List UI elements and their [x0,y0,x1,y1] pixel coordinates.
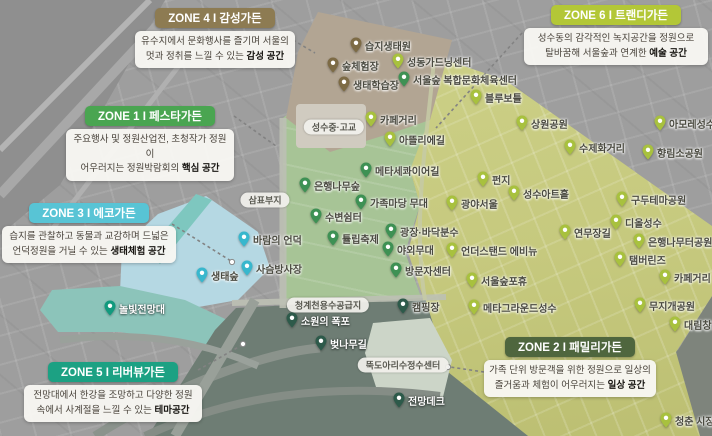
location-pin-icon [390,262,402,278]
zone-3-line2: 언덕정원을 거닐 수 있는 [12,246,110,257]
zone-card-5: ZONE 5 I 리버뷰가든 전망대에서 한강을 조망하고 다양한 정원 속에서… [24,362,202,422]
map-pin: 성동가드닝센터 [392,53,471,69]
location-pin-icon [315,335,327,351]
place-label-chip: 뚝도아리수정수센터 [358,358,449,373]
location-pin-icon [610,214,622,230]
zone-2-title: ZONE 2 I 패밀리가든 [518,342,622,354]
location-pin-icon [633,233,645,249]
zone-3-keyword: 생태체험 공간 [110,246,165,257]
location-pin-icon [238,231,250,247]
zone-2-keyword: 일상 공간 [608,380,646,391]
pin-label: 구두테마공원 [631,192,686,207]
pin-label: 디올성수 [625,215,662,230]
location-pin-icon [508,185,520,201]
location-pin-icon [669,316,681,332]
map-pin: 캠핑장 [397,298,440,314]
map-pin: 향림소공원 [642,144,703,160]
location-pin-icon [564,139,576,155]
pin-label: 무지개공원 [649,298,695,313]
location-pin-icon [470,89,482,105]
location-pin-icon [654,115,666,131]
pin-label: 생태숲 [211,268,239,283]
zone-card-3: ZONE 3 I 에코가든 습지를 관찰하고 동물과 교감하며 드넓은 언덕정원… [2,203,176,263]
map-pin: 대림창고 [669,316,712,332]
location-pin-icon [634,297,646,313]
zone-4-line1: 유수지에서 문화행사를 즐기며 서울의 [141,36,289,47]
zone-4-keyword: 감성 공간 [247,51,285,62]
location-pin-icon [397,298,409,314]
zone-6-header: ZONE 6 I 트랜디가든 [551,5,681,25]
location-pin-icon [559,224,571,240]
map-pin: 방문자센터 [390,262,451,278]
map-pin: 전망데크 [393,392,445,408]
pin-label: 벚나무길 [330,336,367,351]
zone-5-header: ZONE 5 I 리버뷰가든 [48,362,178,382]
map-pin: 사슴방사장 [241,260,302,276]
map-pin: 구두테마공원 [616,191,686,207]
zone-1-keyword: 핵심 공간 [182,163,220,174]
pin-label: 성동가드닝센터 [407,54,471,69]
map-pin: 무지개공원 [634,297,695,313]
pin-label: 성수아트홀 [523,186,569,201]
location-pin-icon [616,191,628,207]
map-pin: 성수아트홀 [508,185,569,201]
location-pin-icon [384,131,396,147]
map-pin: 은행나무터공원 [633,233,712,249]
pin-label: 카페거리 [380,112,417,127]
location-pin-icon [516,115,528,131]
zone-1-description: 주요행사 및 정원산업전, 초청작가 정원이 어우러지는 정원박람회의 핵심 공… [66,129,234,181]
pin-label: 수변쉼터 [325,209,362,224]
location-pin-icon [365,111,377,127]
zone-3-title: ZONE 3 I 에코가든 [42,208,135,220]
location-pin-icon [446,195,458,211]
map-pin: 수변쉼터 [310,208,362,224]
map-pin: 가족마당 무대 [355,194,428,210]
location-pin-icon [392,53,404,69]
location-pin-icon [446,242,458,258]
zone-6-title: ZONE 6 I 트랜디가든 [564,10,668,22]
zone-card-1: ZONE 1 I 페스타가든 주요행사 및 정원산업전, 초청작가 정원이 어우… [66,106,234,181]
map-pin: 탬버린즈 [614,251,666,267]
map-pin: 블루보틀 [470,89,522,105]
location-pin-icon [338,76,350,92]
map-pin: 청춘 시장 [660,412,712,428]
zone-3-line1: 습지를 관찰하고 동물과 교감하며 드넓은 [9,231,168,242]
pin-label: 아뜰리에길 [399,132,445,147]
zone-2-description: 가족 단위 방문객을 위한 정원으로 일상의 즐거움과 체험이 어우러지는 일상… [484,360,656,397]
pin-label: 메타그라운드성수 [483,300,557,315]
pin-label: 청춘 시장 [675,413,712,428]
map-pin: 메타그라운드성수 [468,299,557,315]
map-pin: 광야서울 [446,195,498,211]
map-pin: 야외무대 [382,241,434,257]
map-pin: 은행나무숲 [299,177,360,193]
map-pin: 아뜰리에길 [384,131,445,147]
zone-1-title: ZONE 1 I 페스타가든 [98,111,202,123]
zone-5-line2: 속에서 사계절을 느낄 수 있는 [36,405,154,416]
place-label-chip: 삼표부지 [240,193,289,208]
location-pin-icon [385,223,397,239]
zone-4-title: ZONE 4 I 감성가든 [168,13,261,25]
map-pin: 디올성수 [610,214,662,230]
location-pin-icon [466,272,478,288]
location-pin-icon [104,300,116,316]
map-pin: 언더스탠드 에비뉴 [446,242,537,258]
location-pin-icon [241,260,253,276]
pin-label: 소원의 폭포 [301,313,350,328]
garden-zone-map: 삼표부지성수중·고교청계천용수공급지뚝도아리수정수센터 습지생태원숲체험장생태학… [0,0,712,436]
map-pin: 서울숲포휴 [466,272,527,288]
pin-label: 야외무대 [397,242,434,257]
zone-6-keyword: 예술 공간 [649,48,687,59]
location-pin-icon [196,267,208,283]
pin-label: 광야서울 [461,196,498,211]
pin-label: 아모레성수 [669,116,712,131]
zone-1-line2: 어우러지는 정원박람회의 [80,163,181,174]
pin-label: 놀빛전망대 [119,301,165,316]
map-pin: 숲체험장 [327,57,379,73]
pin-label: 생태학습장 [353,77,399,92]
location-pin-icon [642,144,654,160]
map-pin: 카페거리 [659,269,711,285]
location-pin-icon [660,412,672,428]
pin-label: 은행나무숲 [314,178,360,193]
map-pin: 펀지 [477,171,510,187]
location-pin-icon [310,208,322,224]
map-pin: 생태학습장 [338,76,399,92]
map-pin: 튤립축제 [327,230,379,246]
location-pin-icon [382,241,394,257]
pin-label: 대림창고 [684,317,712,332]
location-pin-icon [659,269,671,285]
place-label-chip: 성수중·고교 [304,120,364,135]
zone-3-header: ZONE 3 I 에코가든 [29,203,148,223]
zone-1-line1: 주요행사 및 정원산업전, 초청작가 정원이 [73,134,226,160]
pin-label: 서울숲포휴 [481,273,527,288]
zone-4-description: 유수지에서 문화행사를 즐기며 서울의 멋과 정취를 느낄 수 있는 감성 공간 [135,31,295,68]
map-pin: 바람의 언덕 [238,231,302,247]
pin-label: 수제화거리 [579,140,625,155]
map-pin: 광장·바닥분수 [385,223,459,239]
pin-label: 캠핑장 [412,299,440,314]
zone-6-description: 성수동의 감각적인 녹지공간을 정원으로 탈바꿈해 서울숲과 연계한 예술 공간 [524,28,708,65]
map-pin: 연무장길 [559,224,611,240]
location-pin-icon [468,299,480,315]
location-pin-icon [350,37,362,53]
pin-label: 바람의 언덕 [253,232,302,247]
pin-label: 탬버린즈 [629,252,666,267]
zone-4-header: ZONE 4 I 감성가든 [155,8,274,28]
location-pin-icon [299,177,311,193]
location-pin-icon [327,230,339,246]
zone-5-description: 전망대에서 한강을 조망하고 다양한 정원 속에서 사계절을 느낄 수 있는 테… [24,385,202,422]
zone-2-line2: 즐거움과 체험이 어우러지는 [495,380,608,391]
zone-5-keyword: 테마공간 [155,405,190,416]
zone-4-line2: 멋과 정취를 느낄 수 있는 [146,51,247,62]
location-pin-icon [360,162,372,178]
location-pin-icon [477,171,489,187]
pin-label: 카페거리 [674,270,711,285]
pin-label: 메타세콰이어길 [375,163,439,178]
zone-2-line1: 가족 단위 방문객을 위한 정원으로 일상의 [489,365,651,376]
place-label-chip: 청계천용수공급지 [287,298,369,313]
map-pin: 서울숲 복합문화체육센터 [398,71,517,87]
pin-label: 서울숲 복합문화체육센터 [413,72,517,87]
pin-label: 은행나무터공원 [648,234,712,249]
zone-5-title: ZONE 5 I 리버뷰가든 [61,367,165,379]
location-pin-icon [398,71,410,87]
pin-label: 튤립축제 [342,231,379,246]
pin-label: 연무장길 [574,225,611,240]
map-pin: 상원공원 [516,115,568,131]
pin-label: 사슴방사장 [256,261,302,276]
zone-6-line1: 성수동의 감각적인 녹지공간을 정원으로 [538,33,695,44]
map-pin: 놀빛전망대 [104,300,165,316]
map-pin: 아모레성수 [654,115,712,131]
map-pin: 수제화거리 [564,139,625,155]
pin-label: 방문자센터 [405,263,451,278]
location-pin-icon [286,312,298,328]
location-pin-icon [614,251,626,267]
zone-1-header: ZONE 1 I 페스타가든 [85,106,215,126]
zone-3-description: 습지를 관찰하고 동물과 교감하며 드넓은 언덕정원을 거닐 수 있는 생태체험… [2,226,176,263]
zone-card-6: ZONE 6 I 트랜디가든 성수동의 감각적인 녹지공간을 정원으로 탈바꿈해… [524,5,708,65]
map-pin: 메타세콰이어길 [360,162,439,178]
pin-label: 습지생태원 [365,38,411,53]
pin-label: 상원공원 [531,116,568,131]
map-pin: 생태숲 [196,267,239,283]
zone-card-2: ZONE 2 I 패밀리가든 가족 단위 방문객을 위한 정원으로 일상의 즐거… [484,337,656,397]
zone-5-line1: 전망대에서 한강을 조망하고 다양한 정원 [33,390,192,401]
map-pin: 습지생태원 [350,37,411,53]
zone-6-line2: 탈바꿈해 서울숲과 연계한 [545,48,649,59]
pin-label: 광장·바닥분수 [400,224,459,239]
pin-label: 숲체험장 [342,58,379,73]
pin-label: 가족마당 무대 [370,195,428,210]
pin-label: 블루보틀 [485,90,522,105]
location-pin-icon [393,392,405,408]
pin-label: 전망데크 [408,393,445,408]
map-pin: 벚나무길 [315,335,367,351]
location-pin-icon [327,57,339,73]
zone-2-header: ZONE 2 I 패밀리가든 [505,337,635,357]
map-pin: 소원의 폭포 [286,312,350,328]
pin-label: 향림소공원 [657,145,703,160]
map-pin: 카페거리 [365,111,417,127]
zone-card-4: ZONE 4 I 감성가든 유수지에서 문화행사를 즐기며 서울의 멋과 정취를… [135,8,295,68]
pin-label: 언더스탠드 에비뉴 [461,243,537,258]
